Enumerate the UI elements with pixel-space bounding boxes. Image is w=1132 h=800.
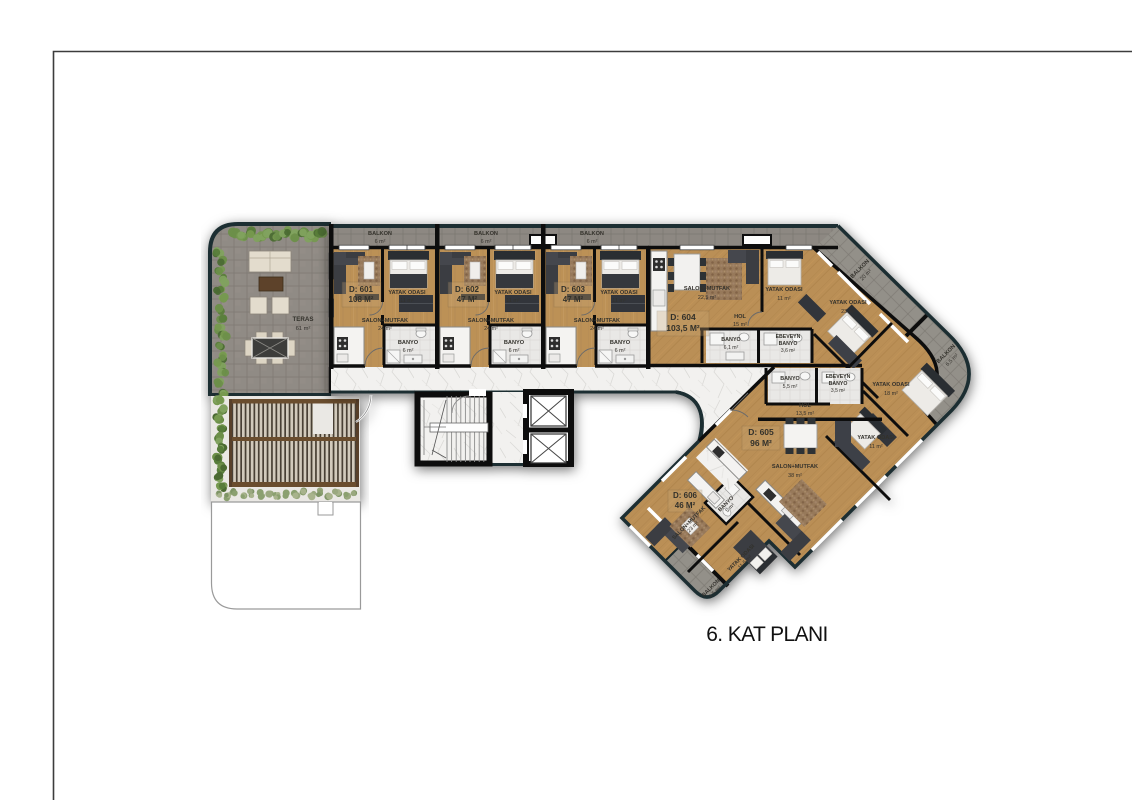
svg-text:BANYO: BANYO — [779, 341, 798, 347]
svg-text:13,5 m²: 13,5 m² — [796, 411, 814, 417]
svg-text:YATAK ODASI: YATAK ODASI — [388, 290, 426, 296]
svg-text:HOL: HOL — [799, 403, 811, 409]
svg-text:24 m²: 24 m² — [378, 326, 392, 332]
svg-text:96 M²: 96 M² — [750, 438, 772, 448]
svg-text:108 M²: 108 M² — [349, 295, 374, 304]
svg-text:18 m²: 18 m² — [884, 391, 898, 397]
svg-text:BALKON: BALKON — [580, 231, 604, 237]
svg-text:BANYO: BANYO — [610, 340, 631, 346]
svg-text:15 m²: 15 m² — [733, 322, 747, 328]
svg-text:EBEVEYN: EBEVEYN — [776, 334, 801, 340]
svg-text:BANYO: BANYO — [504, 340, 525, 346]
svg-text:SALON+MUTFAK: SALON+MUTFAK — [468, 318, 514, 324]
svg-text:6 m²: 6 m² — [403, 348, 414, 354]
svg-text:6 m²: 6 m² — [375, 239, 386, 245]
svg-text:24 m²: 24 m² — [484, 326, 498, 332]
svg-text:EBEVEYN: EBEVEYN — [826, 374, 851, 380]
svg-text:SALON+MUTFAK: SALON+MUTFAK — [684, 286, 730, 292]
svg-text:SALON+MUTFAK: SALON+MUTFAK — [362, 318, 408, 324]
svg-text:22,5 m²: 22,5 m² — [698, 295, 716, 301]
svg-text:6. KAT PLANI: 6. KAT PLANI — [706, 623, 828, 646]
svg-text:6 m²: 6 m² — [615, 348, 626, 354]
svg-text:3,6 m²: 3,6 m² — [781, 348, 796, 354]
svg-text:BANYO: BANYO — [829, 381, 848, 387]
svg-text:47 M²: 47 M² — [457, 295, 478, 304]
svg-text:D: 604: D: 604 — [670, 312, 696, 322]
svg-text:SALON+MUTFAK: SALON+MUTFAK — [574, 318, 620, 324]
svg-text:YATAK ODASI: YATAK ODASI — [494, 290, 532, 296]
svg-text:3,5 m²: 3,5 m² — [831, 388, 846, 394]
svg-text:11 m²: 11 m² — [400, 298, 414, 304]
svg-text:TERAS: TERAS — [293, 316, 314, 323]
svg-text:D: 606: D: 606 — [673, 491, 698, 500]
svg-text:11 m²: 11 m² — [869, 444, 883, 450]
svg-text:11 m²: 11 m² — [777, 296, 791, 302]
svg-text:YATAK ODASI: YATAK ODASI — [872, 382, 910, 388]
svg-text:D: 605: D: 605 — [748, 427, 774, 437]
svg-text:38 m²: 38 m² — [788, 473, 802, 479]
svg-text:BANYO: BANYO — [398, 340, 419, 346]
svg-text:BANYO: BANYO — [780, 376, 799, 382]
svg-text:HOL: HOL — [734, 314, 746, 320]
svg-text:BANYO: BANYO — [721, 337, 740, 343]
svg-text:BALKON: BALKON — [474, 231, 498, 237]
svg-text:6 m²: 6 m² — [587, 239, 598, 245]
svg-text:46 M²: 46 M² — [675, 501, 696, 510]
svg-text:5,5 m²: 5,5 m² — [783, 384, 798, 390]
svg-text:24 m²: 24 m² — [590, 326, 604, 332]
svg-text:6,1 m²: 6,1 m² — [724, 345, 739, 351]
svg-text:YATAK ODASI: YATAK ODASI — [829, 300, 867, 306]
svg-text:D: 601: D: 601 — [349, 285, 374, 294]
svg-text:D: 603: D: 603 — [561, 285, 586, 294]
svg-text:6 m²: 6 m² — [509, 348, 520, 354]
svg-text:61 m²: 61 m² — [296, 326, 311, 332]
svg-text:YATAK ODASI: YATAK ODASI — [765, 287, 803, 293]
svg-text:47 M²: 47 M² — [563, 295, 584, 304]
svg-text:103,5 M²: 103,5 M² — [666, 323, 700, 333]
svg-text:YATAK ODASI: YATAK ODASI — [857, 435, 895, 441]
svg-text:YATAK ODASI: YATAK ODASI — [600, 290, 638, 296]
svg-text:SALON+MUTFAK: SALON+MUTFAK — [772, 464, 818, 470]
svg-text:BALKON: BALKON — [368, 231, 392, 237]
svg-text:11 m²: 11 m² — [612, 298, 626, 304]
svg-text:6 m²: 6 m² — [481, 239, 492, 245]
svg-text:D: 602: D: 602 — [455, 285, 480, 294]
svg-text:23 m²: 23 m² — [841, 309, 855, 315]
svg-text:11 m²: 11 m² — [506, 298, 520, 304]
